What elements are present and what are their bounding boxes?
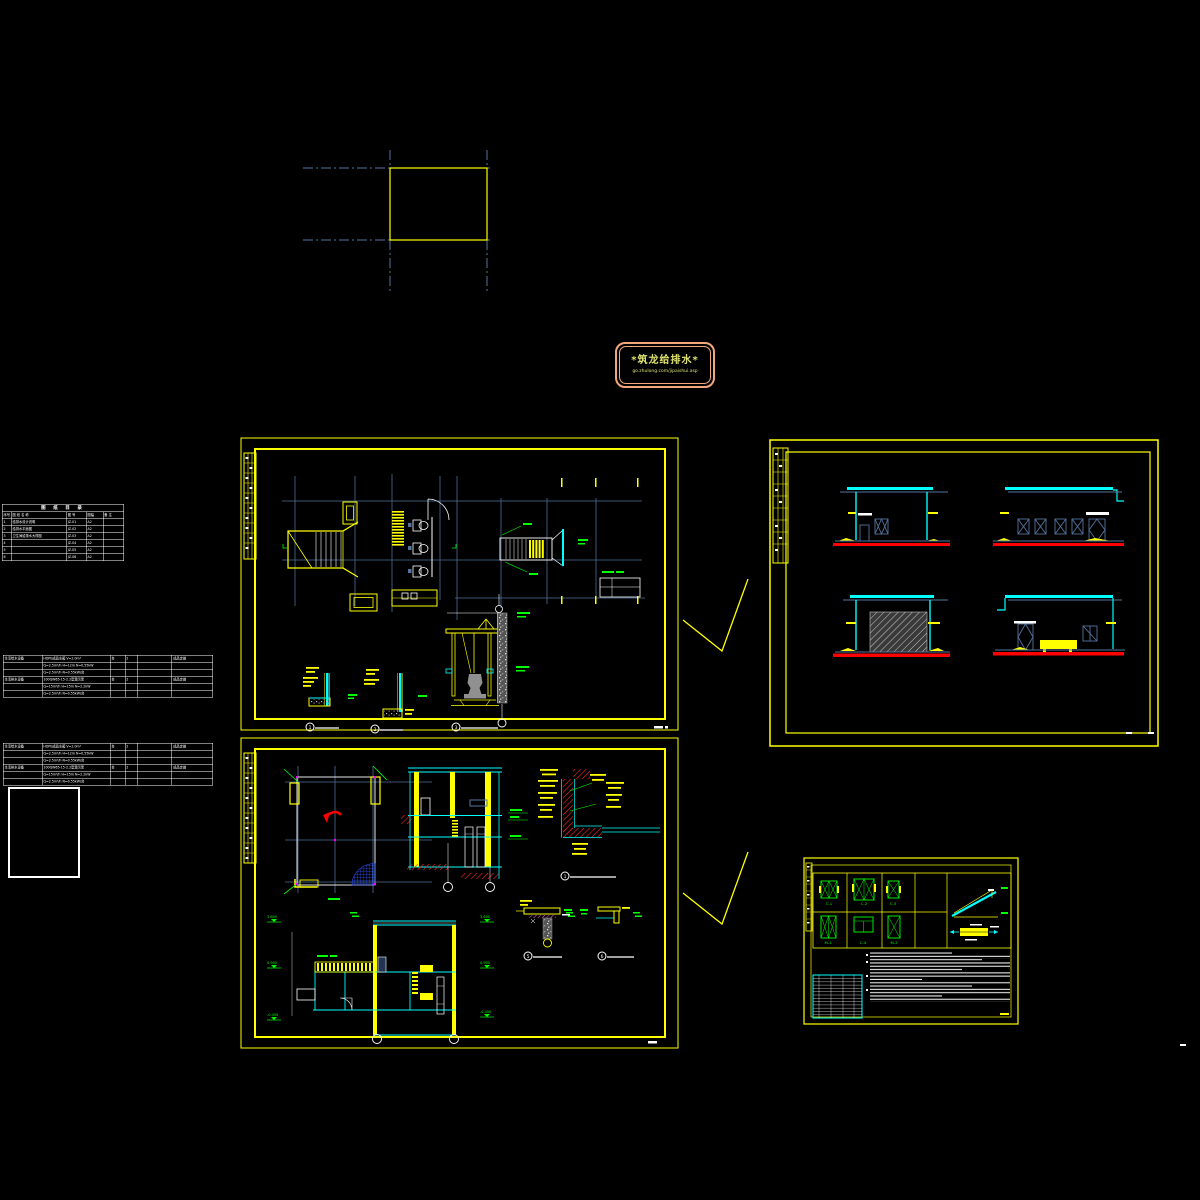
equipment-table: 生活给水设备HDPE成品水箱 V=2.0m³台2成品定做Q=2.5m³/h H=… <box>3 655 213 698</box>
table-cell: 备 注 <box>103 512 124 519</box>
scale-marks <box>350 912 642 917</box>
table-cell <box>110 750 125 757</box>
sheet-plan-details[interactable]: 1 2 <box>240 436 680 734</box>
sheet2-border <box>241 738 678 1048</box>
table-cell <box>138 778 172 785</box>
table-cell <box>138 662 172 669</box>
type-label: C-4 <box>860 940 867 945</box>
table-cell: A2 <box>86 526 103 533</box>
table-row: 1给排水设计说明JZ-01A2 <box>2 519 124 526</box>
table-cell <box>11 547 66 554</box>
door-window-grid: C-1 C-2 C-3 M-1 C-4 <box>813 873 1011 948</box>
table-cell: A2 <box>86 540 103 547</box>
notes-block <box>866 952 1010 1002</box>
table-cell <box>3 669 42 676</box>
table-cell <box>125 757 138 764</box>
table-cell: 生活排水设备 <box>3 676 42 683</box>
section-upper <box>401 768 528 892</box>
table-cell <box>103 554 124 561</box>
table-cell: Q=2.5m³/h H=12m N=0.55kW <box>42 662 110 669</box>
table-cell <box>172 690 213 697</box>
equipment-schedule-2: 生活给水设备HDPE成品水箱 V=2.0m³台2成品定做Q=2.5m³/h H=… <box>3 743 213 783</box>
table-cell <box>103 526 124 533</box>
corner-text-speck <box>1180 1044 1186 1046</box>
table-cell: 图 号 <box>67 512 87 519</box>
table-cell <box>110 771 125 778</box>
table-row: 序号图 纸 名 称图 号图幅备 注 <box>2 512 124 519</box>
table-cell <box>110 778 125 785</box>
table-cell: 2 <box>125 655 138 662</box>
table-row: 生活排水设备100QW65-15-2.2型潜污泵台2成品定做 <box>3 676 213 683</box>
sheet-sections-details[interactable]: 1 <box>240 736 680 1050</box>
table-cell: 图幅 <box>86 512 103 519</box>
table-cell: 台 <box>110 655 125 662</box>
wall-detail: 1 <box>538 769 660 880</box>
type-label: M-2 <box>890 940 898 945</box>
table-cell <box>110 757 125 764</box>
table-cell: A2 <box>86 554 103 561</box>
table-cell: JZ-03 <box>67 533 87 540</box>
table-cell <box>3 771 42 778</box>
table-cell <box>125 683 138 690</box>
window-type-3: C-3 <box>886 881 901 906</box>
elevation-front <box>833 487 950 546</box>
table-cell <box>138 750 172 757</box>
table-cell: JZ-04 <box>67 540 87 547</box>
window-type-4: C-4 <box>854 917 873 945</box>
table-cell <box>138 743 172 750</box>
elev-value: 3.600 <box>480 915 490 919</box>
table-cell <box>138 690 172 697</box>
table-row: 4JZ-04A2 <box>2 540 124 547</box>
equipment-schedule-1: 生活给水设备HDPE成品水箱 V=2.0m³台2成品定做Q=2.5m³/h H=… <box>3 655 213 695</box>
table-row: Q=2.5m³/h N=0.55kW/台 <box>3 690 213 697</box>
table-cell: JZ-01 <box>67 519 87 526</box>
table-row: 生活排水设备100QW65-15-2.2型潜污泵台2成品定做 <box>3 764 213 771</box>
table-cell <box>3 683 42 690</box>
detail-a-number: 5 <box>527 954 530 960</box>
table-cell <box>172 683 213 690</box>
table-cell: 生活给水设备 <box>3 655 42 662</box>
plan-toilets <box>408 499 449 577</box>
table-cell <box>125 690 138 697</box>
table-cell <box>110 683 125 690</box>
type-label: C-3 <box>890 901 897 906</box>
table-cell: 2 <box>125 676 138 683</box>
table-cell: Q=2.5m³/h N=0.55kW/台 <box>42 757 110 764</box>
table-row: Q=2.5m³/h H=12m N=0.55kW <box>3 750 213 757</box>
door-type-2: M-2 <box>888 916 900 945</box>
table-cell: Q=2.5m³/h H=12m N=0.55kW <box>42 750 110 757</box>
elev-value: -0.450 <box>480 1010 491 1014</box>
table-cell: 台 <box>110 676 125 683</box>
elev-value: 3.600 <box>267 915 277 919</box>
threshold-detail <box>950 924 999 941</box>
type-label: M-1 <box>824 940 832 945</box>
table-row: 生活给水设备HDPE成品水箱 V=2.0m³台2成品定做 <box>3 655 213 662</box>
plan-legend-box <box>600 571 640 597</box>
table-cell: Q=2.5m³/h N=0.55kW/台 <box>42 690 110 697</box>
elevation-rear <box>993 487 1124 546</box>
table-cell: HDPE成品水箱 V=2.0m³ <box>42 743 110 750</box>
table-cell: A2 <box>86 533 103 540</box>
table-cell <box>3 750 42 757</box>
table-cell <box>3 662 42 669</box>
sheet2-corner-label <box>648 1041 657 1044</box>
plan-stair-fragment <box>500 523 588 575</box>
table-cell <box>172 771 213 778</box>
table-cell: Q=15m³/h H=15m N=2.2kW <box>42 771 110 778</box>
table-cell: 100QW65-15-2.2型潜污泵 <box>42 764 110 771</box>
table-cell <box>110 662 125 669</box>
table-cell: 100QW65-15-2.2型潜污泵 <box>42 676 110 683</box>
table-cell: 图 纸 名 称 <box>11 512 66 519</box>
drawing-list-table: 序号图 纸 名 称图 号图幅备 注1给排水设计说明JZ-01A22给排水平面图J… <box>2 512 124 562</box>
table-row: 生活给水设备HDPE成品水箱 V=2.0m³台2成品定做 <box>3 743 213 750</box>
table-cell: 6 <box>2 554 11 561</box>
detail-b-number: 6 <box>601 954 604 960</box>
watermark-subtitle: go.zhulong.com/jipaishui.asp <box>632 370 697 375</box>
table-row: Q=2.5m³/h H=12m N=0.55kW <box>3 662 213 669</box>
table-row: 3卫生间给排水大样图JZ-03A2 <box>2 533 124 540</box>
watermark-inner-border: *筑龙给排水* go.zhulong.com/jipaishui.asp <box>619 346 711 384</box>
table-cell <box>103 540 124 547</box>
table-cell: 给排水平面图 <box>11 526 66 533</box>
watermark-badge: *筑龙给排水* go.zhulong.com/jipaishui.asp <box>615 342 715 388</box>
detail-2-number: 2 <box>374 727 377 733</box>
table-cell <box>138 764 172 771</box>
ramp-detail <box>952 887 1008 917</box>
table-row: Q=2.5m³/h N=0.55kW/台 <box>3 757 213 764</box>
table-cell <box>110 690 125 697</box>
table-cell <box>3 757 42 764</box>
elev-value: 0.900 <box>480 961 490 965</box>
table-cell: 卫生间给排水大样图 <box>11 533 66 540</box>
schedule-corner-label <box>1000 1013 1009 1015</box>
table-cell: HDPE成品水箱 V=2.0m³ <box>42 655 110 662</box>
table-cell: Q=15m³/h H=15m N=2.2kW <box>42 683 110 690</box>
window-type-2: C-2 <box>852 879 876 906</box>
table-cell: 生活排水设备 <box>3 764 42 771</box>
elev-sheet-border <box>770 440 1158 746</box>
table-cell <box>172 750 213 757</box>
title-table <box>813 975 862 1018</box>
table-cell: 台 <box>110 764 125 771</box>
axis-grid-figure[interactable] <box>295 145 495 295</box>
table-cell <box>125 662 138 669</box>
table-cell <box>3 778 42 785</box>
check-mark-1 <box>683 579 748 651</box>
table-cell <box>172 757 213 764</box>
plan-ramp-hatch <box>392 511 404 546</box>
table-cell: 2 <box>2 526 11 533</box>
table-cell <box>125 778 138 785</box>
table-row: Q=15m³/h H=15m N=2.2kW <box>3 683 213 690</box>
table-cell: Q=2.5m³/h N=0.55kW/台 <box>42 669 110 676</box>
cad-canvas[interactable]: *筑龙给排水* go.zhulong.com/jipaishui.asp 图 纸… <box>0 0 1200 1200</box>
table-cell: 2 <box>125 764 138 771</box>
door-type-1: M-1 <box>821 916 836 945</box>
table-cell <box>125 771 138 778</box>
table-cell: Q=2.5m³/h N=0.55kW/台 <box>42 778 110 785</box>
check-marks <box>675 570 755 930</box>
table-cell <box>172 669 213 676</box>
window-type-1: C-1 <box>819 881 839 906</box>
detail-1: 1 <box>303 667 357 731</box>
table-row: Q=2.5m³/h N=0.55kW/台 <box>3 669 213 676</box>
table-cell <box>103 533 124 540</box>
plan-lower-fixtures <box>350 590 503 613</box>
table-cell: 2 <box>125 743 138 750</box>
table-cell: 3 <box>2 533 11 540</box>
table-cell: 台 <box>110 743 125 750</box>
table-row: 6JZ-06A2 <box>2 554 124 561</box>
table-cell <box>125 750 138 757</box>
sheet-elevations[interactable] <box>768 438 1160 750</box>
table-cell <box>103 547 124 554</box>
elevation-side-hatched <box>833 595 950 657</box>
table-cell: JZ-02 <box>67 526 87 533</box>
table-cell: 4 <box>2 540 11 547</box>
drawing-list-title: 图 纸 目 录 <box>2 504 124 512</box>
table-cell <box>138 683 172 690</box>
type-label: C-1 <box>826 901 833 906</box>
elevation-side-door <box>993 595 1125 656</box>
table-cell <box>125 669 138 676</box>
drawing-list: 图 纸 目 录 序号图 纸 名 称图 号图幅备 注1给排水设计说明JZ-01A2… <box>2 504 125 566</box>
detail-3: 3 <box>446 612 530 731</box>
table-cell: JZ-06 <box>67 554 87 561</box>
detail-b: 6 <box>580 907 634 960</box>
detail-3-number: 3 <box>455 725 458 731</box>
table-cell <box>138 655 172 662</box>
sheet-schedule-notes[interactable]: C-1 C-2 C-3 M-1 C-4 <box>802 856 1020 1026</box>
centerlines <box>303 150 490 293</box>
empty-frame-rect <box>8 787 80 878</box>
table-cell: 成品定做 <box>172 655 213 662</box>
table-cell <box>110 669 125 676</box>
table-cell <box>138 669 172 676</box>
watermark-title: *筑龙给排水* <box>631 356 698 366</box>
check-mark-2 <box>683 852 748 924</box>
table-cell: 5 <box>2 547 11 554</box>
wall-detail-number: 1 <box>564 874 567 880</box>
detail-1-number: 1 <box>309 725 312 731</box>
table-cell: 1 <box>2 519 11 526</box>
table-cell: 序号 <box>2 512 11 519</box>
table-cell: JZ-05 <box>67 547 87 554</box>
table-row: Q=15m³/h H=15m N=2.2kW <box>3 771 213 778</box>
table-cell <box>11 554 66 561</box>
table-row: 5JZ-05A2 <box>2 547 124 554</box>
equipment-table: 生活给水设备HDPE成品水箱 V=2.0m³台2成品定做Q=2.5m³/h H=… <box>3 743 213 786</box>
plan-outline-rect <box>390 168 487 240</box>
table-cell: 生活给水设备 <box>3 743 42 750</box>
table-cell: 成品定做 <box>172 676 213 683</box>
detail-a: 5 <box>516 900 572 960</box>
table-cell: 成品定做 <box>172 764 213 771</box>
table-cell <box>138 676 172 683</box>
elev-value: 0.900 <box>267 961 277 965</box>
section-lower: 3.600 0.900 -0.450 3.600 0.900 -0.450 <box>267 915 494 1044</box>
sheet1-grid-lines <box>282 474 645 620</box>
table-cell: A2 <box>86 519 103 526</box>
type-label: C-2 <box>861 901 868 906</box>
table-cell <box>172 662 213 669</box>
table-cell <box>138 757 172 764</box>
plan-ramp <box>283 522 456 577</box>
sheet1-corner-label <box>654 726 668 729</box>
table-cell <box>11 540 66 547</box>
table-row: Q=2.5m³/h N=0.55kW/台 <box>3 778 213 785</box>
table-cell <box>3 690 42 697</box>
table-cell <box>172 778 213 785</box>
elev-value: -0.450 <box>267 1013 278 1017</box>
table-cell: A2 <box>86 547 103 554</box>
detail-2: 2 <box>364 669 427 733</box>
table-cell <box>103 519 124 526</box>
table-row: 2给排水平面图JZ-02A2 <box>2 526 124 533</box>
table-cell <box>138 771 172 778</box>
table-cell: 给排水设计说明 <box>11 519 66 526</box>
table-cell: 成品定做 <box>172 743 213 750</box>
